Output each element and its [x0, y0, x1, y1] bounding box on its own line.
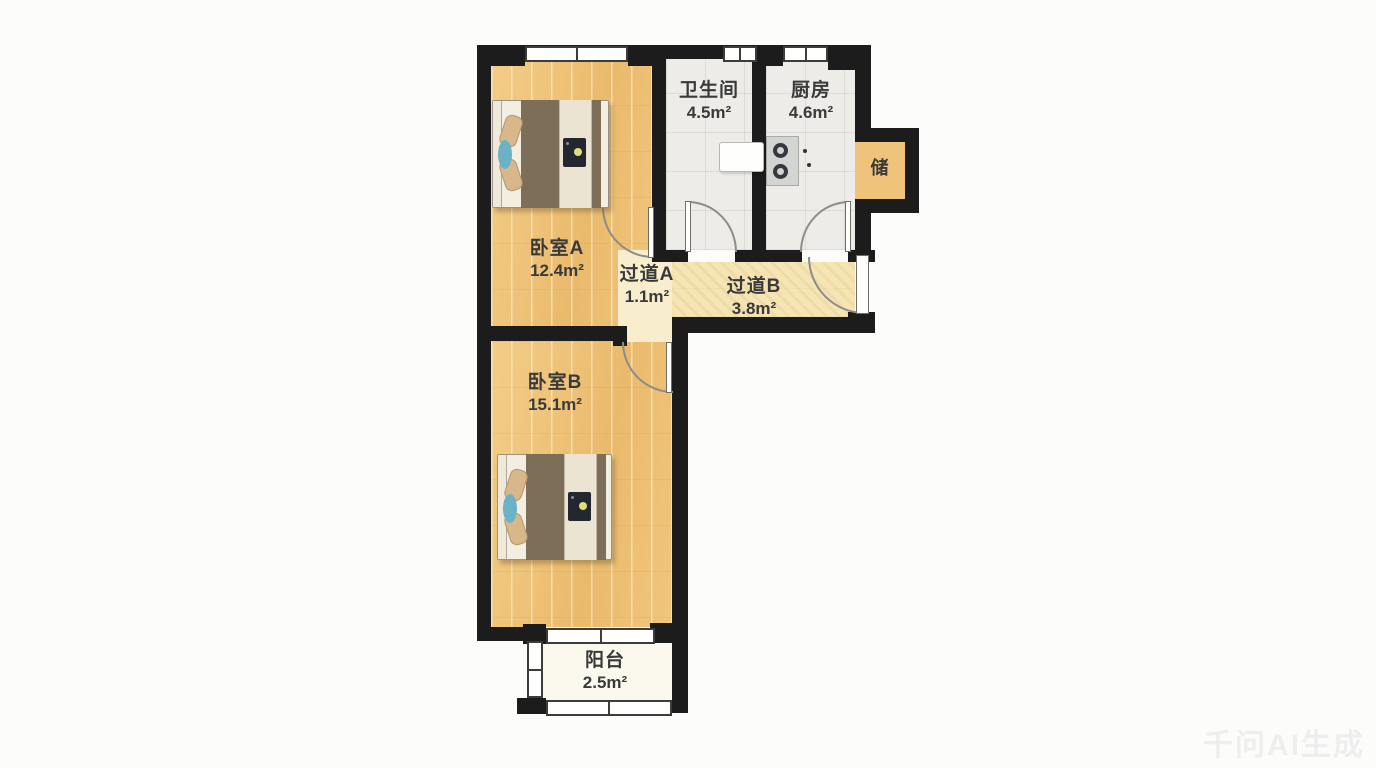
room-label-balcony: 阳台 2.5m² — [544, 650, 666, 693]
bed-blue-throw — [503, 494, 517, 523]
room-area: 15.1m² — [493, 395, 617, 415]
stove-cooktop — [766, 136, 799, 186]
room-label-bedroom-a: 卧室A 12.4m² — [496, 238, 618, 281]
window — [546, 700, 672, 716]
door-leaf-entrance — [856, 255, 869, 314]
bed-tray — [568, 492, 591, 521]
wall-segment — [477, 45, 491, 641]
wall-segment — [477, 627, 523, 641]
room-label-corridor-a: 过道A 1.1m² — [608, 264, 686, 307]
bed-duvet — [526, 454, 564, 560]
burner — [773, 143, 788, 158]
lamp-dot — [574, 148, 582, 156]
room-label-bedroom-b: 卧室B 15.1m² — [493, 372, 617, 415]
door-leaf-bedroom-b — [666, 342, 672, 393]
double-bed-b — [497, 454, 612, 560]
wall-segment — [672, 317, 688, 713]
bed-duvet-strip — [597, 454, 606, 560]
room-name: 过道B — [698, 276, 810, 299]
balcony-slider-window — [546, 628, 655, 644]
door-leaf-kitchen — [845, 201, 851, 252]
room-label-corridor-b: 过道B 3.8m² — [698, 276, 810, 319]
room-name: 储 — [855, 158, 905, 180]
burner — [773, 164, 788, 179]
bed-duvet — [521, 100, 559, 208]
wall-segment — [672, 317, 875, 333]
room-name: 卧室B — [493, 372, 617, 395]
room-label-storage: 储 — [855, 158, 905, 180]
bed-tray — [563, 138, 586, 167]
wall-segment — [652, 250, 688, 262]
wall-segment — [652, 45, 666, 262]
room-label-bathroom: 卫生间 4.5m² — [664, 80, 754, 123]
room-area: 4.5m² — [664, 103, 754, 123]
wall-segment — [650, 623, 688, 643]
bed-duvet-strip — [592, 100, 601, 208]
small-dot — [571, 496, 574, 499]
wall-segment — [735, 250, 766, 262]
room-label-kitchen: 厨房 4.6m² — [766, 80, 856, 123]
door-leaf-bathroom — [685, 201, 691, 252]
room-area: 12.4m² — [496, 261, 618, 281]
window — [783, 46, 828, 62]
bed-blue-throw — [498, 140, 512, 169]
bathroom-basin — [719, 142, 764, 172]
stove-knob — [803, 149, 807, 153]
room-name: 卫生间 — [664, 80, 754, 103]
wall-segment — [477, 326, 613, 341]
small-dot — [566, 142, 569, 145]
window — [525, 46, 628, 62]
room-name: 厨房 — [766, 80, 856, 103]
floor-plan-canvas: 卧室A 12.4m² 卫生间 4.5m² 厨房 4.6m² 储 过道A 1.1m… — [0, 0, 1376, 768]
room-area: 4.6m² — [766, 103, 856, 123]
stove-knob — [807, 163, 811, 167]
wall-segment — [517, 698, 546, 714]
door-leaf-bedroom-a — [648, 207, 654, 258]
wall-segment — [766, 250, 802, 262]
room-name: 阳台 — [544, 650, 666, 673]
window — [527, 641, 543, 698]
lamp-dot — [579, 502, 587, 510]
room-area: 3.8m² — [698, 299, 810, 319]
wall-segment — [477, 45, 525, 66]
room-area: 2.5m² — [544, 673, 666, 693]
room-area: 1.1m² — [608, 287, 686, 307]
window — [723, 46, 757, 62]
room-name: 过道A — [608, 264, 686, 287]
wall-segment — [855, 199, 871, 257]
double-bed-a — [492, 100, 609, 208]
room-name: 卧室A — [496, 238, 618, 261]
ai-watermark: 千问AI生成 — [1203, 720, 1365, 764]
